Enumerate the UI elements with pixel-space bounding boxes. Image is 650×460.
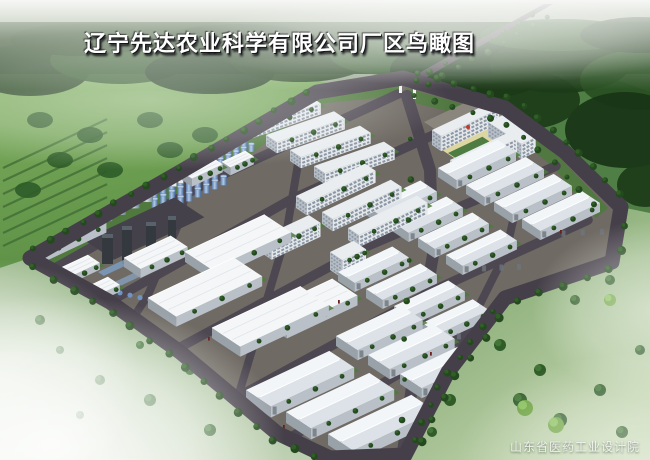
tree — [380, 396, 385, 401]
tree-highlight — [297, 234, 300, 237]
tree-highlight — [506, 157, 509, 160]
tree-highlight — [421, 312, 424, 315]
tree — [467, 339, 473, 345]
tree-highlight — [436, 220, 439, 223]
tree — [142, 182, 150, 190]
tree-highlight — [165, 257, 168, 260]
storage-tank-top — [169, 189, 175, 192]
tree — [400, 262, 405, 267]
tree — [399, 417, 406, 424]
tree — [277, 238, 282, 243]
tree-highlight — [418, 438, 423, 443]
storage-tank-top — [177, 185, 183, 188]
person-figure — [560, 230, 562, 234]
process-tower — [102, 234, 113, 264]
tree-highlight — [522, 103, 525, 106]
tree — [313, 386, 319, 392]
tree — [290, 444, 299, 453]
loading-door — [457, 333, 461, 339]
tree — [82, 270, 88, 276]
tree-highlight — [208, 171, 211, 174]
tree-highlight — [353, 408, 356, 411]
tree-highlight — [413, 437, 417, 441]
tree — [395, 430, 401, 436]
tree — [364, 176, 369, 181]
tree — [219, 296, 225, 302]
tree-highlight — [438, 304, 441, 307]
tree — [296, 233, 302, 239]
tree — [602, 177, 608, 183]
tree — [410, 286, 416, 292]
tree-highlight — [278, 239, 281, 242]
tree-highlight — [480, 228, 483, 231]
tree — [402, 377, 407, 382]
tree-highlight — [285, 325, 288, 328]
tree — [542, 199, 548, 205]
tree-highlight — [576, 186, 580, 190]
tree — [514, 298, 521, 305]
tree-highlight — [451, 372, 456, 377]
person-figure — [430, 352, 432, 356]
tree — [393, 218, 399, 224]
tree — [508, 245, 513, 250]
tree-highlight — [248, 283, 251, 286]
tree — [496, 192, 501, 197]
loading-door — [313, 429, 317, 437]
tree — [421, 312, 426, 317]
tree — [521, 103, 527, 109]
storage-tank-top — [203, 183, 209, 186]
tree-highlight — [575, 149, 579, 153]
person-figure — [338, 300, 340, 304]
tree-highlight — [400, 262, 403, 265]
tree — [354, 254, 360, 260]
loading-door — [391, 369, 395, 376]
tree — [393, 295, 398, 300]
loading-door — [499, 265, 503, 271]
tree — [326, 421, 331, 426]
tree — [164, 257, 170, 263]
tree-highlight — [390, 192, 393, 195]
tree-highlight — [552, 226, 555, 229]
tree-highlight — [564, 140, 567, 143]
tree — [402, 363, 407, 368]
loading-door — [542, 231, 546, 237]
tree-highlight — [495, 314, 500, 319]
tree — [412, 325, 417, 330]
tree — [468, 175, 473, 180]
tree-highlight — [456, 296, 459, 299]
tree — [382, 269, 388, 275]
tree — [320, 197, 325, 202]
tree-highlight — [399, 417, 403, 421]
tree — [286, 399, 291, 404]
tree — [575, 149, 583, 157]
tree — [390, 192, 395, 197]
tree-highlight — [220, 296, 223, 299]
tree — [419, 228, 424, 233]
tree-highlight — [395, 430, 398, 433]
tree-clump — [15, 182, 41, 198]
tree — [434, 384, 440, 390]
tree-highlight — [287, 399, 290, 402]
tree-highlight — [257, 339, 260, 342]
tree — [486, 165, 492, 171]
tree-highlight — [403, 377, 406, 380]
loading-door — [486, 197, 490, 203]
tree — [207, 171, 213, 177]
tree-highlight — [360, 160, 363, 163]
tree-highlight — [81, 220, 84, 223]
tree-highlight — [535, 147, 539, 151]
tree-highlight — [338, 169, 341, 172]
tree — [422, 353, 428, 359]
tree-highlight — [82, 271, 85, 274]
tree-highlight — [368, 202, 371, 205]
storage-tank-top — [212, 179, 218, 182]
tree — [444, 344, 449, 349]
tree — [438, 303, 444, 309]
tree — [533, 114, 541, 122]
tree-highlight — [402, 364, 405, 367]
tree — [150, 265, 155, 270]
loading-door — [385, 300, 389, 306]
tree — [436, 219, 442, 225]
scene-svg — [0, 0, 650, 460]
tree-highlight — [408, 137, 411, 140]
tree — [590, 208, 595, 213]
tree — [506, 157, 511, 162]
loading-door — [423, 388, 427, 395]
tree-highlight — [491, 309, 494, 312]
tree — [368, 443, 373, 448]
tree — [514, 182, 520, 188]
tree — [341, 186, 347, 192]
tree — [416, 208, 421, 213]
tree — [257, 339, 262, 344]
tree-highlight — [63, 228, 67, 232]
tree — [94, 265, 99, 270]
tree-highlight — [562, 191, 565, 194]
tree — [534, 146, 541, 153]
tree-highlight — [348, 258, 351, 261]
tree — [590, 163, 597, 170]
tree-highlight — [508, 245, 511, 248]
flag — [466, 125, 470, 129]
tree-highlight — [291, 445, 296, 450]
tree-highlight — [110, 200, 114, 204]
tree — [552, 159, 558, 165]
tree-highlight — [515, 182, 518, 185]
tree — [372, 229, 377, 234]
loading-door — [465, 266, 469, 272]
tree-highlight — [419, 228, 422, 231]
tree-highlight — [412, 325, 415, 328]
pressure-vessel — [127, 293, 132, 298]
loading-door — [357, 283, 361, 289]
tree-highlight — [372, 229, 375, 232]
tree — [161, 173, 168, 180]
tree-highlight — [394, 218, 397, 221]
tree-highlight — [488, 115, 492, 119]
tree — [401, 336, 407, 342]
tree-highlight — [30, 246, 33, 249]
tree-highlight — [143, 182, 147, 186]
pressure-vessel — [137, 295, 142, 300]
tree-highlight — [458, 355, 461, 358]
process-tower-cap — [168, 216, 176, 220]
tree-highlight — [521, 135, 524, 138]
tree — [456, 296, 461, 301]
tree — [62, 228, 69, 235]
tree-highlight — [445, 244, 448, 247]
tree — [247, 283, 252, 288]
tree — [534, 174, 539, 179]
tree-highlight — [534, 114, 538, 118]
tree — [114, 287, 119, 292]
tree — [428, 416, 435, 423]
tree-highlight — [423, 353, 426, 356]
tree — [482, 334, 490, 342]
tree-highlight — [406, 217, 409, 220]
tree-highlight — [550, 127, 554, 131]
tree — [192, 309, 197, 314]
tree — [418, 437, 427, 446]
storage-tank-top — [186, 191, 192, 194]
tree — [563, 139, 569, 145]
tree — [408, 176, 415, 183]
tree-highlight — [393, 295, 396, 298]
tree — [403, 298, 410, 305]
tree-highlight — [369, 443, 372, 446]
tree — [479, 323, 486, 330]
tree — [370, 344, 375, 349]
rendering-title: 辽宁先达农业科学有限公司厂区鸟瞰图 — [84, 26, 475, 58]
tree-highlight — [468, 339, 472, 343]
tree-highlight — [480, 323, 484, 327]
tree-highlight — [410, 287, 413, 290]
tree-highlight — [468, 355, 472, 359]
tree-highlight — [534, 174, 537, 177]
tree-highlight — [552, 160, 555, 163]
tree-highlight — [571, 216, 574, 219]
tree-highlight — [590, 208, 593, 211]
tree-highlight — [428, 196, 431, 199]
tree — [285, 325, 291, 331]
tree — [550, 127, 557, 134]
tree — [473, 261, 478, 266]
tree-highlight — [198, 176, 201, 179]
tree — [198, 176, 203, 181]
tree — [383, 153, 388, 158]
storage-tank-top — [178, 195, 184, 198]
tree — [570, 216, 576, 222]
factory-campus-aerial-rendering: 辽宁先达农业科学有限公司厂区鸟瞰图 山东省医药工业设计院 — [0, 0, 650, 460]
loading-door — [437, 249, 441, 255]
tree-highlight — [454, 212, 457, 215]
tree-highlight — [342, 186, 345, 189]
tree — [454, 212, 459, 217]
loading-door — [561, 230, 565, 236]
tree — [562, 191, 567, 196]
tree-highlight — [468, 175, 471, 178]
storage-tank-top — [160, 193, 166, 196]
tree — [30, 245, 36, 251]
tree — [448, 329, 453, 334]
tree-highlight — [47, 236, 51, 240]
tree-highlight — [383, 153, 386, 156]
tree — [81, 220, 87, 226]
tree-highlight — [590, 163, 594, 167]
tree — [444, 369, 451, 376]
tree-highlight — [416, 208, 419, 211]
tree — [428, 402, 433, 407]
tree — [464, 321, 470, 327]
tree-highlight — [504, 122, 507, 125]
loading-door — [581, 230, 585, 236]
tree-highlight — [428, 279, 431, 282]
tree-highlight — [429, 402, 432, 405]
tree-highlight — [404, 298, 408, 302]
tree — [312, 226, 317, 231]
tree-highlight — [313, 227, 316, 230]
tree-highlight — [370, 345, 373, 348]
process-tower-cap — [122, 226, 132, 230]
tree-highlight — [252, 250, 255, 253]
tree-highlight — [314, 312, 317, 315]
tree-highlight — [346, 213, 349, 216]
tree — [340, 374, 345, 379]
tree-highlight — [363, 251, 366, 254]
tree — [490, 252, 496, 258]
tree-highlight — [462, 236, 465, 239]
tree — [467, 355, 474, 362]
tree-highlight — [471, 110, 474, 113]
tree — [390, 334, 396, 340]
tree — [338, 168, 343, 173]
tree — [180, 250, 185, 255]
tree — [367, 202, 373, 208]
tree-highlight — [428, 428, 434, 434]
tree-highlight — [407, 258, 410, 261]
tree — [552, 226, 557, 231]
tree — [503, 122, 509, 128]
tree — [470, 110, 475, 115]
tree-highlight — [495, 340, 502, 347]
loading-door — [514, 214, 518, 220]
loading-door — [359, 350, 363, 357]
tree-highlight — [340, 374, 343, 377]
tree — [408, 137, 413, 142]
tree — [313, 312, 318, 317]
tree-highlight — [429, 417, 433, 421]
tree-highlight — [504, 94, 508, 98]
tree-highlight — [114, 288, 117, 291]
tree-highlight — [483, 334, 487, 338]
tree-highlight — [180, 251, 183, 254]
storage-tank-top — [195, 187, 201, 190]
tree-highlight — [94, 266, 97, 269]
tree-highlight — [382, 270, 385, 273]
tree — [450, 371, 459, 380]
tree — [353, 408, 359, 414]
tree-highlight — [450, 104, 453, 107]
tree — [412, 437, 418, 443]
tree-highlight — [591, 202, 594, 205]
tree-highlight — [193, 309, 196, 312]
tree-highlight — [150, 265, 153, 268]
storage-tank-top — [221, 175, 227, 178]
tree-highlight — [616, 190, 620, 194]
tree — [365, 278, 370, 283]
tree — [521, 135, 526, 140]
tree-highlight — [543, 199, 546, 202]
tree — [418, 419, 425, 426]
tree-highlight — [320, 197, 323, 200]
tree-highlight — [364, 176, 367, 179]
tree-highlight — [441, 394, 445, 398]
process-tower-cap — [146, 222, 156, 226]
tree-highlight — [487, 165, 490, 168]
tree — [428, 196, 433, 201]
tree-highlight — [524, 209, 527, 212]
tree-highlight — [473, 261, 476, 264]
tree-highlight — [487, 91, 491, 95]
design-institute-watermark: 山东省医药工业设计院 — [510, 438, 640, 455]
tree — [462, 235, 468, 241]
tree-highlight — [95, 210, 99, 214]
tree — [95, 210, 103, 218]
tree — [427, 427, 437, 437]
tree — [345, 301, 350, 306]
tree — [591, 201, 597, 207]
tree-highlight — [603, 178, 606, 181]
tree — [449, 104, 455, 110]
tree-highlight — [490, 253, 493, 256]
tree-highlight — [444, 369, 448, 373]
tree — [128, 191, 134, 197]
tree-highlight — [496, 192, 499, 195]
tree — [441, 394, 449, 402]
loading-door — [482, 265, 486, 271]
tree — [406, 217, 412, 223]
loading-door — [517, 264, 521, 270]
tree-highlight — [313, 386, 316, 389]
tree — [251, 250, 257, 256]
tree — [524, 209, 529, 214]
tree — [311, 453, 318, 460]
tree — [616, 190, 624, 198]
tree — [480, 228, 485, 233]
loading-door — [411, 233, 415, 239]
tree-highlight — [327, 421, 330, 424]
tree-highlight — [444, 344, 447, 347]
tree-highlight — [449, 329, 452, 332]
tree — [362, 251, 367, 256]
tree-highlight — [419, 419, 423, 423]
tree — [347, 258, 352, 263]
tree-highlight — [391, 334, 394, 337]
tree-highlight — [346, 301, 349, 304]
tree — [47, 236, 55, 244]
tree — [503, 93, 510, 100]
tree-highlight — [355, 254, 358, 257]
tree-highlight — [408, 177, 412, 181]
tree — [576, 186, 583, 193]
tree — [346, 213, 351, 218]
tree-highlight — [515, 298, 519, 302]
tree-highlight — [435, 385, 439, 389]
